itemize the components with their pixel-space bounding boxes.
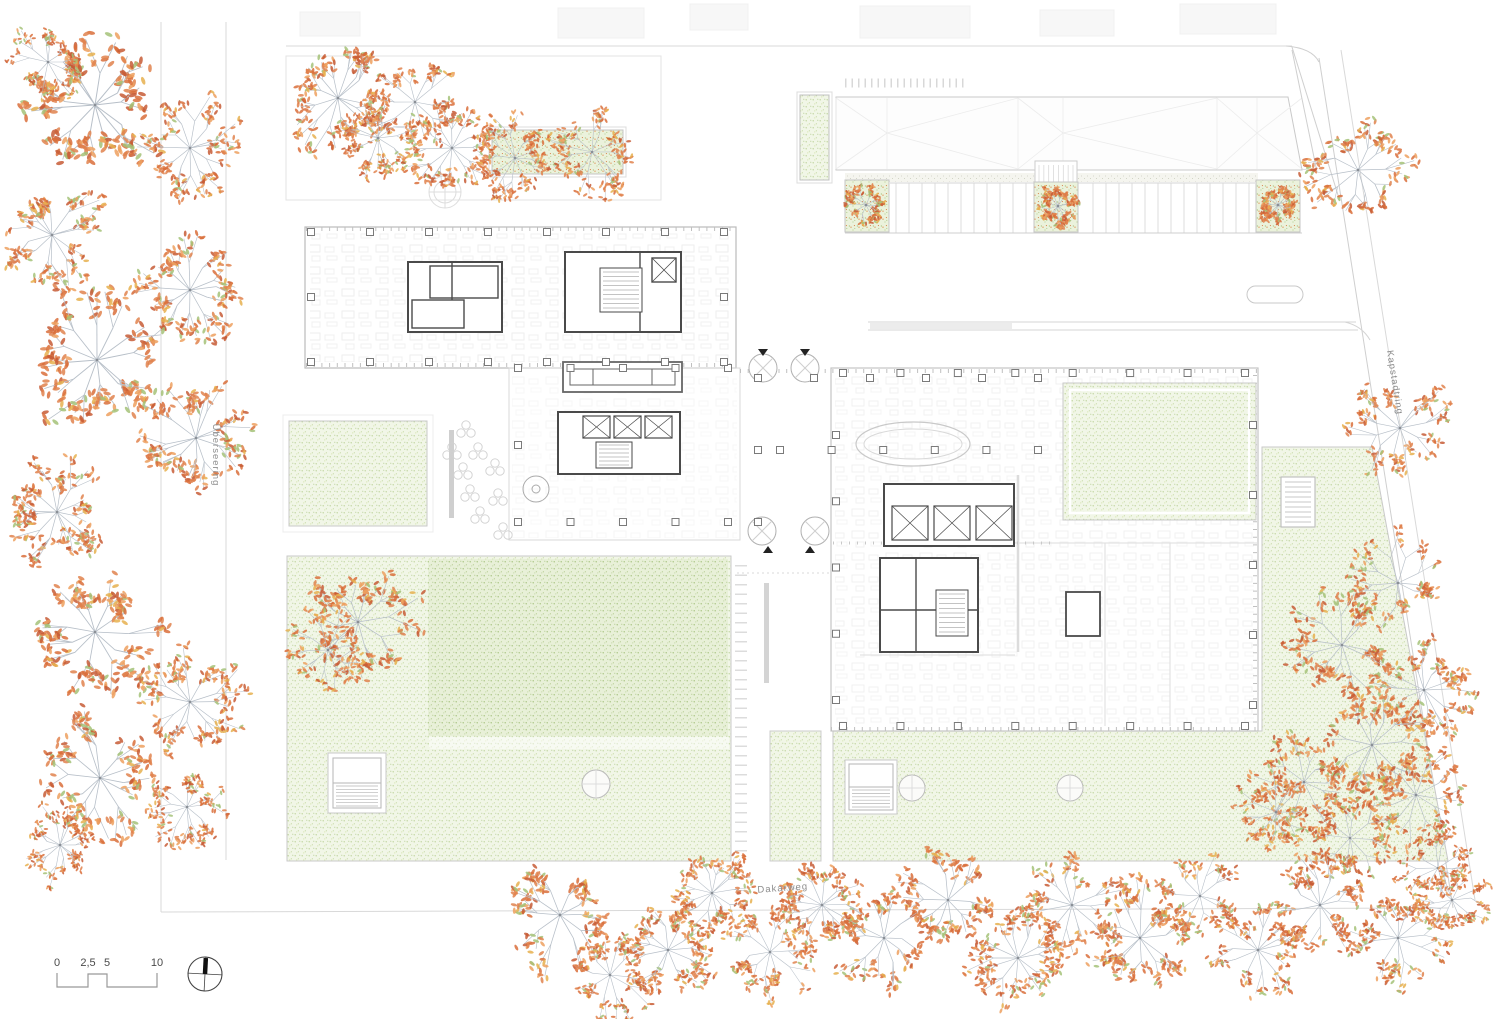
scale-tick-1: 2,5	[80, 957, 95, 969]
building-a-north-wing	[305, 227, 736, 368]
column	[308, 294, 315, 301]
column	[1250, 492, 1257, 499]
column	[1250, 422, 1257, 429]
column	[603, 359, 610, 366]
column	[1035, 375, 1042, 382]
column	[1184, 370, 1191, 377]
column	[755, 447, 762, 454]
column	[833, 697, 840, 704]
column	[1242, 370, 1249, 377]
column	[620, 365, 627, 372]
column	[983, 447, 990, 454]
column	[515, 442, 522, 449]
column	[1127, 370, 1134, 377]
core-b	[565, 252, 681, 332]
core-d	[1066, 592, 1100, 636]
walkway-bench	[764, 583, 769, 683]
column	[833, 564, 840, 571]
core-a	[408, 262, 502, 332]
roof-stair-south	[845, 760, 897, 814]
column	[1012, 370, 1019, 377]
courtyard-green	[1063, 383, 1256, 520]
column	[833, 498, 840, 505]
column	[840, 723, 847, 730]
green-square-west	[283, 415, 433, 532]
column	[833, 432, 840, 439]
column	[426, 229, 433, 236]
column	[1069, 370, 1076, 377]
column	[1250, 702, 1257, 709]
column	[662, 359, 669, 366]
column	[485, 359, 492, 366]
column	[840, 370, 847, 377]
column	[567, 365, 574, 372]
column	[867, 375, 874, 382]
scale-tick-0: 0	[54, 957, 60, 969]
column	[367, 229, 374, 236]
carport-canopy	[836, 97, 1302, 170]
core-lobby	[558, 412, 680, 474]
core-c1	[884, 484, 1014, 546]
bench-pill	[1247, 286, 1303, 303]
roof-stair-east	[1281, 477, 1315, 527]
column	[979, 375, 986, 382]
roof-stair-southwest	[328, 753, 386, 813]
green-roof-southwest	[287, 556, 731, 861]
skylight	[582, 770, 610, 798]
column	[1012, 723, 1019, 730]
column	[755, 519, 762, 526]
column	[367, 359, 374, 366]
column	[672, 365, 679, 372]
column	[725, 519, 732, 526]
column	[923, 375, 930, 382]
column	[1242, 723, 1249, 730]
column	[721, 229, 728, 236]
scale-tick-2: 5	[104, 957, 110, 969]
column	[1127, 723, 1134, 730]
column	[777, 447, 784, 454]
column	[308, 229, 315, 236]
column	[620, 519, 627, 526]
column	[721, 294, 728, 301]
green-strip-south	[770, 731, 821, 861]
scale-tick-3: 10	[151, 957, 163, 969]
street-label-left: Überseering	[210, 424, 221, 487]
column	[880, 447, 887, 454]
column	[515, 519, 522, 526]
core-c2	[880, 558, 978, 652]
column	[931, 447, 938, 454]
column	[897, 723, 904, 730]
column	[544, 229, 551, 236]
column	[1069, 723, 1076, 730]
column	[755, 375, 762, 382]
column	[828, 447, 835, 454]
column	[308, 359, 315, 366]
column	[515, 365, 522, 372]
column	[1035, 447, 1042, 454]
column	[567, 519, 574, 526]
column	[811, 375, 818, 382]
column	[1250, 632, 1257, 639]
column	[897, 370, 904, 377]
column	[833, 630, 840, 637]
column	[426, 359, 433, 366]
column	[1184, 723, 1191, 730]
column	[954, 370, 961, 377]
column	[485, 229, 492, 236]
column	[603, 229, 610, 236]
column	[1250, 562, 1257, 569]
column	[544, 359, 551, 366]
column	[721, 359, 728, 366]
column	[954, 723, 961, 730]
column	[672, 519, 679, 526]
site-plan-svg: Überseering Kapstadtring Dakarweg 0 2,5 …	[0, 0, 1512, 1019]
green-strip-north	[797, 92, 832, 183]
column	[662, 229, 669, 236]
